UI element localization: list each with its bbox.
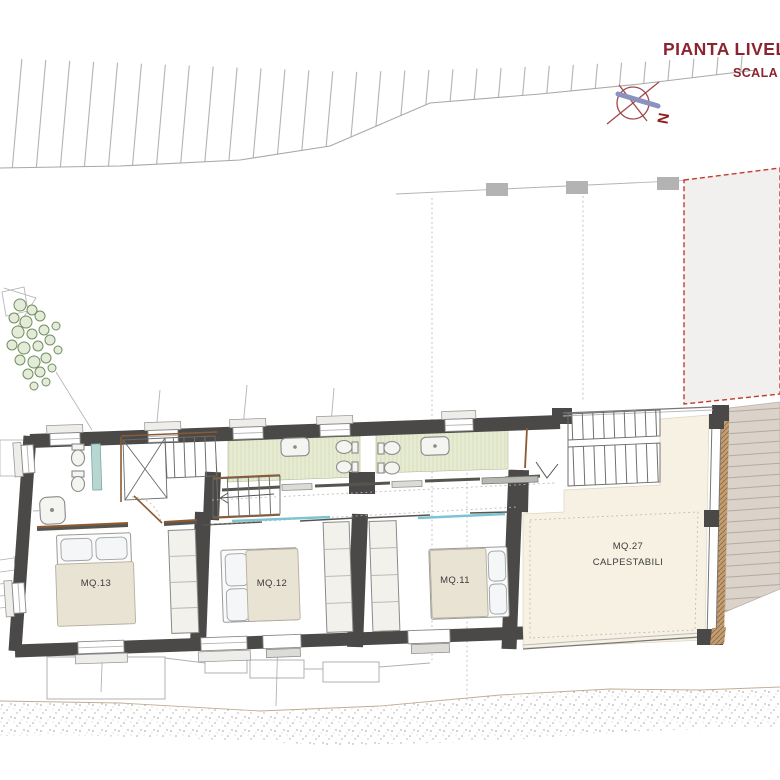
wall-pier (657, 177, 679, 190)
svg-text:CALPESTABILI: CALPESTABILI (593, 557, 664, 568)
room-label: MQ.13 (81, 578, 112, 589)
wc-symbol (72, 444, 85, 466)
room-label: MQ.12 (257, 578, 288, 589)
bedroom-middle: MQ.12 (221, 522, 353, 633)
wardrobe-symbol (323, 522, 353, 633)
lower-level-outline (47, 657, 430, 699)
wc-symbol (378, 442, 400, 455)
floor-plan-page: N PIANTA LIVELL SCALA 1 (0, 0, 780, 780)
gravel-path (0, 687, 780, 745)
compass: N (607, 82, 672, 125)
bedroom-right: MQ.11 (369, 521, 509, 632)
wall-pier (486, 183, 508, 196)
compass-needle (618, 94, 658, 106)
sink-symbol (32, 496, 65, 525)
svg-text:MQ.27: MQ.27 (613, 541, 644, 552)
bidet-symbol (337, 461, 359, 473)
tree (2, 287, 92, 430)
wardrobe-symbol (369, 521, 400, 632)
dashed-zone (684, 168, 780, 404)
north-label: N (653, 111, 672, 125)
page-title: PIANTA LIVELL (663, 39, 780, 59)
vanity-counter (91, 444, 102, 490)
floor-plan-drawing: N PIANTA LIVELL SCALA 1 (0, 0, 780, 780)
page-subtitle: SCALA 1 (733, 66, 780, 80)
wc-symbol (336, 441, 358, 454)
bedroom-left: MQ.13 (54, 530, 198, 634)
sink-symbol (421, 437, 450, 456)
wall-pier (566, 181, 588, 194)
bidet-symbol (378, 462, 400, 474)
wardrobe-symbol (168, 530, 199, 634)
room-label: MQ.11 (440, 575, 470, 586)
terrain-slope-hatch (0, 55, 756, 168)
bidet-symbol (72, 471, 85, 492)
sink-symbol (281, 438, 310, 457)
bathroom-left (32, 444, 101, 525)
